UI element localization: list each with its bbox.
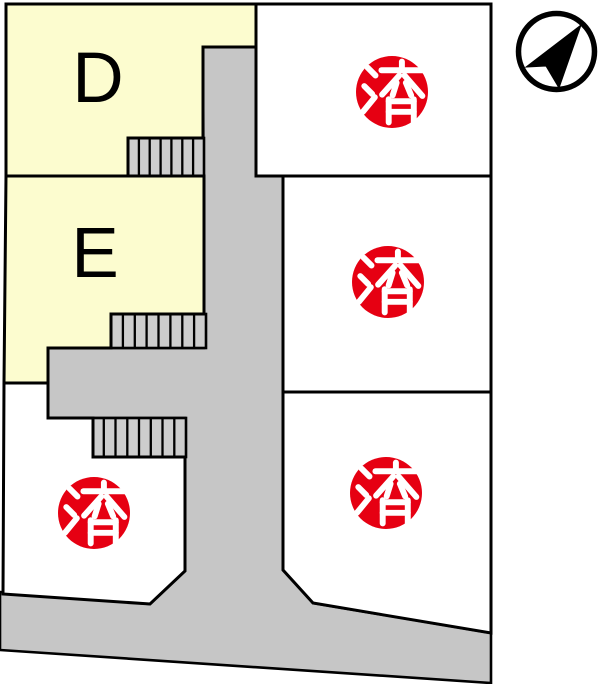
sold-badge-middle-right: 済: [352, 246, 424, 318]
stairs-middle: [111, 314, 206, 348]
sold-badge-top-right: 済: [356, 56, 428, 128]
stairs-top: [128, 138, 204, 176]
sold-badge-bottom-left: 済: [58, 477, 130, 549]
stairs-bottom: [92, 418, 186, 457]
lot-map: D E 済 済 済 済: [0, 0, 600, 684]
lot-d-label: D: [72, 39, 123, 118]
lot-e-label: E: [71, 214, 118, 293]
sold-badge-bottom-right: 済: [350, 457, 422, 529]
lot-map-page: D E 済 済 済 済: [0, 0, 600, 684]
compass: [519, 14, 595, 90]
